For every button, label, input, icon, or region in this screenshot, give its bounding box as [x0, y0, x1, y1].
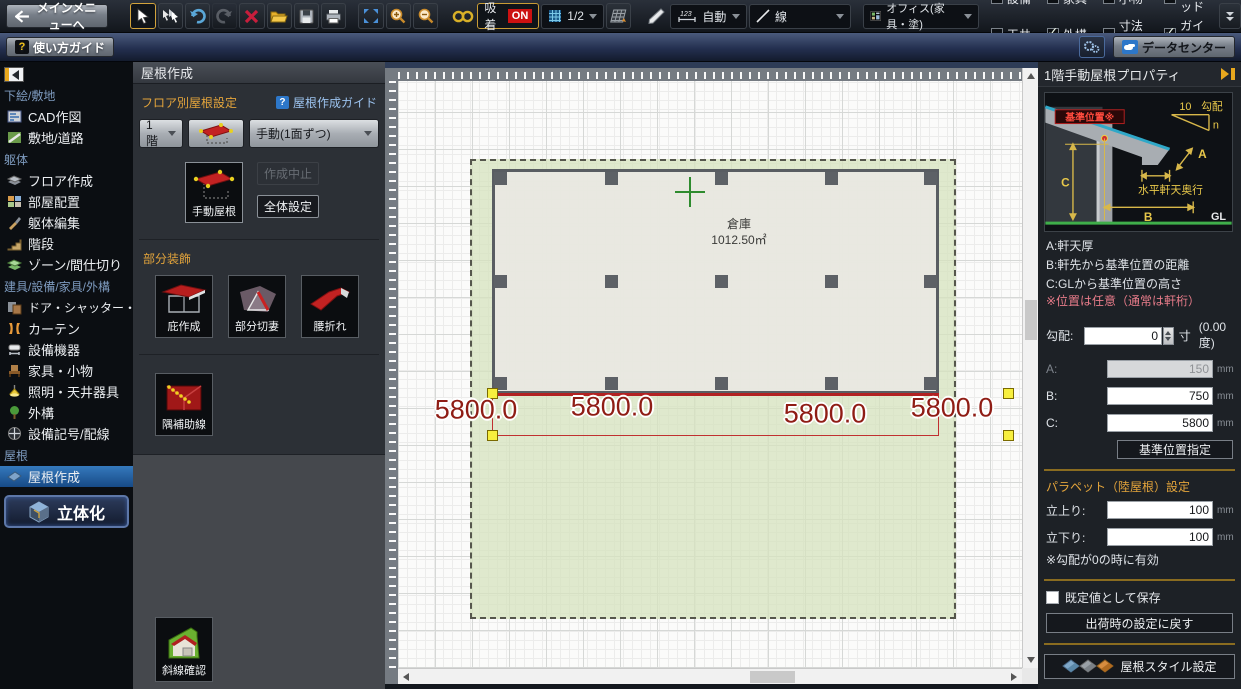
column[interactable] — [825, 377, 838, 390]
slant-check-icon — [161, 624, 207, 660]
snap-on-badge: ON — [508, 9, 533, 23]
section-header-roof: 屋根 — [0, 444, 133, 466]
column[interactable] — [715, 377, 728, 390]
curtain-icon — [7, 321, 22, 336]
zoom-in-button[interactable] — [386, 3, 411, 29]
sidebar-item-symbols-wiring[interactable]: 設備記号/配線 — [0, 423, 133, 444]
template-dropdown[interactable]: オフィス(家具・塗) — [863, 4, 979, 29]
toolbar-expand-button[interactable] — [1219, 3, 1241, 29]
roof-handle[interactable] — [487, 430, 498, 441]
crosshair-cursor — [689, 177, 691, 207]
sidebar-item-stairs[interactable]: 階段 — [0, 233, 133, 254]
triangle-right-icon — [1221, 68, 1229, 80]
snap-toggle[interactable]: 吸着 ON — [477, 3, 539, 29]
spin-up-icon — [1165, 331, 1171, 335]
slant-line-check-button[interactable]: 斜線確認 — [155, 617, 213, 682]
site-road-icon — [7, 130, 22, 145]
grid-icon — [548, 9, 562, 23]
floor-create-icon — [7, 173, 22, 188]
dropdown-caret-icon — [168, 131, 176, 136]
guide-bar: ? 使い方ガイド データセンター — [0, 33, 1241, 62]
room-name: 倉庫 — [711, 216, 766, 232]
column[interactable] — [924, 275, 937, 288]
roof-handle[interactable] — [1003, 388, 1014, 399]
zoom-out-button[interactable] — [413, 3, 438, 29]
dropdown-caret-icon — [964, 14, 972, 19]
room-layout-icon — [7, 194, 22, 209]
zone-partition-icon — [7, 257, 22, 272]
column[interactable] — [494, 172, 507, 185]
column[interactable] — [924, 377, 937, 390]
panel-title: 屋根作成 — [133, 62, 385, 84]
printer-icon — [325, 9, 342, 24]
checkbox-furniture[interactable]: 家具 — [1047, 0, 1087, 15]
slope-label: 勾配: — [1046, 327, 1084, 344]
field-b-label: B: — [1046, 389, 1084, 403]
ruler-corner — [385, 68, 398, 81]
grid-scale-dropdown[interactable]: 1/2 — [541, 4, 604, 29]
sidebar-item-structure-edit[interactable]: 躯体編集 — [0, 212, 133, 233]
parapet-up-input[interactable] — [1107, 501, 1213, 519]
print-button[interactable] — [321, 3, 346, 29]
save-icon — [299, 9, 314, 24]
open-file-button[interactable] — [267, 3, 292, 29]
save-button[interactable] — [294, 3, 319, 29]
svg-text:基準位置※: 基準位置※ — [1064, 111, 1114, 124]
legend-note-b: B:軒先から基準位置の距離 — [1038, 255, 1241, 274]
cancel-create-button[interactable]: 作成中止 — [257, 162, 319, 185]
undo-icon — [189, 8, 206, 24]
auto-dimension-icon: 123 — [677, 9, 697, 23]
method-select-dropdown[interactable]: 手動(1面ずつ) — [249, 119, 379, 148]
settings-button[interactable] — [1079, 36, 1105, 58]
select-tool-button[interactable] — [130, 3, 155, 29]
measure-pen-icon — [647, 8, 665, 24]
fit-view-button[interactable] — [358, 3, 383, 29]
equipment-icon — [7, 342, 22, 357]
roof-guide-link[interactable]: ? 屋根作成ガイド — [276, 94, 377, 111]
partial-gable-icon — [234, 282, 280, 316]
checkbox-equipment[interactable]: 設備 — [991, 0, 1031, 15]
gambrel-icon — [307, 282, 353, 316]
sidebar-item-cad[interactable]: CAD作図 — [0, 106, 133, 127]
collapse-bar-icon — [5, 68, 9, 81]
base-position-button[interactable]: 基準位置指定 — [1117, 440, 1233, 459]
partial-decoration-label: 部分装飾 — [133, 246, 385, 267]
dimension-label: 5800.0 — [911, 393, 994, 424]
cloud-icon — [1122, 40, 1138, 54]
horizontal-scrollbar[interactable] — [398, 668, 1022, 684]
svg-text:123: 123 — [680, 11, 692, 18]
manual-roof-icon — [192, 169, 236, 201]
line-icon — [756, 9, 770, 23]
partial-gable-button[interactable]: 部分切妻 — [228, 275, 286, 338]
parapet-down-label: 立下り: — [1046, 529, 1092, 546]
furniture-icon — [7, 363, 22, 378]
field-c-unit: mm — [1217, 418, 1233, 429]
back-arrow-icon — [15, 9, 30, 24]
roof-style-button[interactable]: 屋根スタイル設定 — [1044, 654, 1235, 679]
drawing-canvas-area: 倉庫 1012.50㎡ 5800.0 5800.0 5800.0 5800.0 — [385, 62, 1038, 689]
column[interactable] — [605, 172, 618, 185]
main-menu-button[interactable]: メインメニューへ — [6, 4, 108, 28]
corner-auxiliary-line-button[interactable]: 隅補助線 — [155, 373, 213, 436]
column[interactable] — [924, 172, 937, 185]
parapet-up-label: 立上り: — [1046, 502, 1092, 519]
floor-select-dropdown[interactable]: 1階 — [139, 119, 183, 148]
stairs-icon — [7, 236, 22, 251]
corner-auxiliary-icon — [161, 380, 207, 414]
horizontal-scroll-thumb[interactable] — [750, 671, 795, 683]
dimension-label: 5800.0 — [571, 392, 654, 423]
svg-text:A: A — [1198, 147, 1207, 161]
eaves-icon — [161, 282, 207, 316]
checkbox-box — [1164, 0, 1176, 4]
column[interactable] — [715, 275, 728, 288]
zoom-in-icon — [390, 8, 406, 24]
sidebar-item-zone-partition[interactable]: ゾーン/間仕切り — [0, 254, 133, 275]
column[interactable] — [605, 377, 618, 390]
sidebar-item-site-road[interactable]: 敷地/道路 — [0, 127, 133, 148]
cad-icon — [7, 109, 22, 124]
snap-chain-icon — [452, 10, 474, 23]
roof-properties-panel: 1階手動屋根プロパティ 10 勾配 n 基準位置※ — [1038, 62, 1241, 689]
column[interactable] — [494, 275, 507, 288]
measure-tool-button[interactable] — [643, 3, 668, 29]
multi-select-icon — [161, 8, 179, 24]
canvas-bottom-strip — [385, 684, 1038, 689]
lighting-icon — [7, 384, 22, 399]
field-a-input — [1107, 360, 1213, 378]
sidebar-item-exterior[interactable]: 外構 — [0, 402, 133, 423]
angle-grid-icon — [610, 9, 627, 23]
scroll-right-icon[interactable] — [1011, 673, 1017, 681]
vertical-scroll-thumb[interactable] — [1025, 300, 1037, 340]
scroll-left-icon[interactable] — [403, 673, 409, 681]
gambrel-button[interactable]: 腰折れ — [301, 275, 359, 338]
dimension-mode-dropdown[interactable]: 123 自動 — [670, 4, 747, 29]
section-header-structure: 躯体 — [0, 148, 133, 170]
redo-icon — [216, 8, 233, 24]
field-b-input[interactable] — [1107, 387, 1213, 405]
save-default-checkbox-row[interactable]: 既定値として保存 — [1038, 581, 1241, 606]
room-area: 1012.50㎡ — [711, 232, 766, 248]
floor-roof-setting-label: フロア別屋根設定 — [141, 94, 237, 111]
sidebar-item-equipment[interactable]: 設備機器 — [0, 339, 133, 360]
svg-text:水平軒天奥行: 水平軒天奥行 — [1138, 183, 1203, 197]
line-type-dropdown[interactable]: 線 — [749, 4, 851, 29]
horizontal-ruler — [398, 68, 1022, 81]
roof-section-diagram: 10 勾配 n 基準位置※ C A 水平軒天奥行 — [1044, 92, 1233, 232]
parapet-up-unit: mm — [1217, 505, 1233, 516]
properties-title: 1階手動屋根プロパティ — [1044, 65, 1180, 84]
vertical-scrollbar[interactable] — [1022, 68, 1038, 668]
checkbox-grid[interactable]: グリッド — [1164, 0, 1209, 15]
slope-spinner[interactable] — [1163, 327, 1174, 345]
panel-expand-button[interactable] — [1221, 68, 1235, 80]
chevron-down-icon — [1226, 17, 1234, 21]
parapet-section-title: パラペット（陸屋根）設定 — [1038, 471, 1241, 495]
sidebar-item-roof-create[interactable]: 屋根作成 — [0, 466, 133, 487]
door-window-icon — [7, 300, 22, 315]
checkbox-box — [1046, 591, 1059, 604]
section-header-fixtures: 建具/設備/家具/外構 — [0, 275, 133, 297]
exterior-tree-icon — [7, 405, 22, 420]
dropdown-caret-icon — [732, 14, 740, 19]
svg-text:10: 10 — [1179, 101, 1191, 113]
help-icon: ? — [15, 40, 29, 54]
template-icon — [870, 9, 881, 23]
legend-note-a: A:軒天厚 — [1038, 236, 1241, 255]
zoom-out-icon — [418, 8, 434, 24]
position-warning-note: ※位置は任意（通常は軒桁） — [1038, 293, 1241, 310]
slope-degrees: (0.00度) — [1199, 320, 1233, 351]
room-label: 倉庫 1012.50㎡ — [711, 216, 766, 248]
checkbox-box — [991, 0, 1003, 4]
checkbox-box — [1047, 0, 1059, 4]
parapet-down-unit: mm — [1217, 532, 1233, 543]
sidebar-item-lighting[interactable]: 照明・天井器具 — [0, 381, 133, 402]
solid-cube-icon — [28, 501, 50, 523]
application-window: メインメニューへ — [0, 0, 1241, 689]
field-a-label: A: — [1046, 362, 1084, 376]
svg-text:GL: GL — [1211, 211, 1226, 223]
sidebar-item-floor-create[interactable]: フロア作成 — [0, 170, 133, 191]
slope-unit: 寸 — [1179, 327, 1191, 344]
fit-view-icon — [363, 8, 379, 24]
parapet-note: ※勾配が0の時に有効 — [1038, 546, 1241, 569]
structure-edit-icon — [7, 215, 22, 230]
site-boundary[interactable]: 倉庫 1012.50㎡ 5800.0 5800.0 5800.0 5800.0 — [470, 159, 956, 619]
redo-button[interactable] — [212, 3, 237, 29]
sidebar-collapse-button[interactable] — [4, 67, 24, 82]
roof-shape-icon — [197, 122, 235, 146]
angle-grid-button[interactable] — [606, 3, 631, 29]
vertical-ruler — [385, 81, 398, 668]
snap-chain-button[interactable] — [450, 3, 475, 29]
dropdown-caret-icon — [364, 131, 372, 136]
field-a-unit: mm — [1217, 364, 1233, 375]
dropdown-caret-icon — [836, 14, 844, 19]
undo-button[interactable] — [185, 3, 210, 29]
sidebar-item-curtain[interactable]: カーテン — [0, 318, 133, 339]
slope-input[interactable] — [1084, 327, 1162, 345]
field-b-unit: mm — [1217, 391, 1233, 402]
roof-shape-button[interactable] — [188, 119, 244, 148]
column[interactable] — [715, 172, 728, 185]
dropdown-caret-icon — [589, 14, 597, 19]
roof-tool-panel: 屋根作成 フロア別屋根設定 ? 屋根作成ガイド 1階 手動(1面ずつ) — [133, 62, 385, 689]
roof-tiles-icon — [1062, 657, 1114, 675]
roof-handle[interactable] — [1003, 430, 1014, 441]
scroll-up-icon[interactable] — [1027, 73, 1035, 79]
column[interactable] — [605, 275, 618, 288]
parapet-down-input[interactable] — [1107, 528, 1213, 546]
gear-icon — [1083, 40, 1101, 54]
svg-text:n: n — [1213, 119, 1219, 131]
sidebar-item-furniture[interactable]: 家具・小物 — [0, 360, 133, 381]
checkbox-box — [1103, 0, 1115, 4]
scrollbar-corner — [1022, 668, 1038, 684]
expand-bar-icon — [1231, 68, 1235, 80]
data-center-button[interactable]: データセンター — [1113, 36, 1235, 58]
checkbox-small-items[interactable]: 小物 — [1103, 0, 1148, 15]
field-c-input[interactable] — [1107, 414, 1213, 432]
spin-down-icon — [1165, 337, 1171, 341]
roof-create-icon — [7, 469, 22, 484]
column[interactable] — [825, 275, 838, 288]
main-toolbar: メインメニューへ — [0, 0, 1241, 33]
chevron-down-icon — [1226, 12, 1234, 16]
make-3d-button[interactable]: 立体化 — [4, 495, 129, 528]
help-icon: ? — [276, 96, 289, 109]
eaves-create-button[interactable]: 庇作成 — [155, 275, 213, 338]
dimension-label: 5800.0 — [435, 395, 518, 426]
factory-reset-button[interactable]: 出荷時の設定に戻す — [1046, 613, 1233, 632]
overall-setting-button[interactable]: 全体設定 — [257, 195, 319, 218]
svg-text:C: C — [1061, 176, 1070, 190]
field-c-label: C: — [1046, 416, 1084, 430]
usage-guide-button[interactable]: ? 使い方ガイド — [6, 37, 114, 57]
manual-roof-button[interactable]: 手動屋根 — [185, 162, 243, 223]
select-cursor-icon — [136, 8, 150, 24]
collapse-left-icon — [12, 70, 19, 80]
open-folder-icon — [270, 9, 288, 24]
drawing-area[interactable]: 倉庫 1012.50㎡ 5800.0 5800.0 5800.0 5800.0 — [398, 81, 1022, 668]
multi-select-tool-button[interactable] — [158, 3, 183, 29]
save-default-label: 既定値として保存 — [1065, 589, 1161, 606]
legend-note-c: C:GLから基準位置の高さ — [1038, 274, 1241, 293]
navigation-sidebar: 下絵/敷地 CAD作図 敷地/道路 躯体 フロア作成 部屋配置 躯体編集 階段 — [0, 62, 133, 689]
column[interactable] — [825, 172, 838, 185]
delete-button[interactable] — [239, 3, 264, 29]
roof-outline[interactable] — [492, 393, 939, 436]
separator — [1044, 643, 1235, 645]
delete-icon — [244, 9, 259, 24]
sidebar-item-room-layout[interactable]: 部屋配置 — [0, 191, 133, 212]
svg-text:勾配: 勾配 — [1201, 100, 1223, 113]
section-header-sketch-site: 下絵/敷地 — [0, 84, 133, 106]
sidebar-item-door-shutter-window[interactable]: ドア・シャッター・窓 — [0, 297, 133, 318]
dimension-label: 5800.0 — [784, 399, 867, 430]
scroll-down-icon[interactable] — [1027, 657, 1035, 663]
symbols-wiring-icon — [7, 426, 22, 441]
